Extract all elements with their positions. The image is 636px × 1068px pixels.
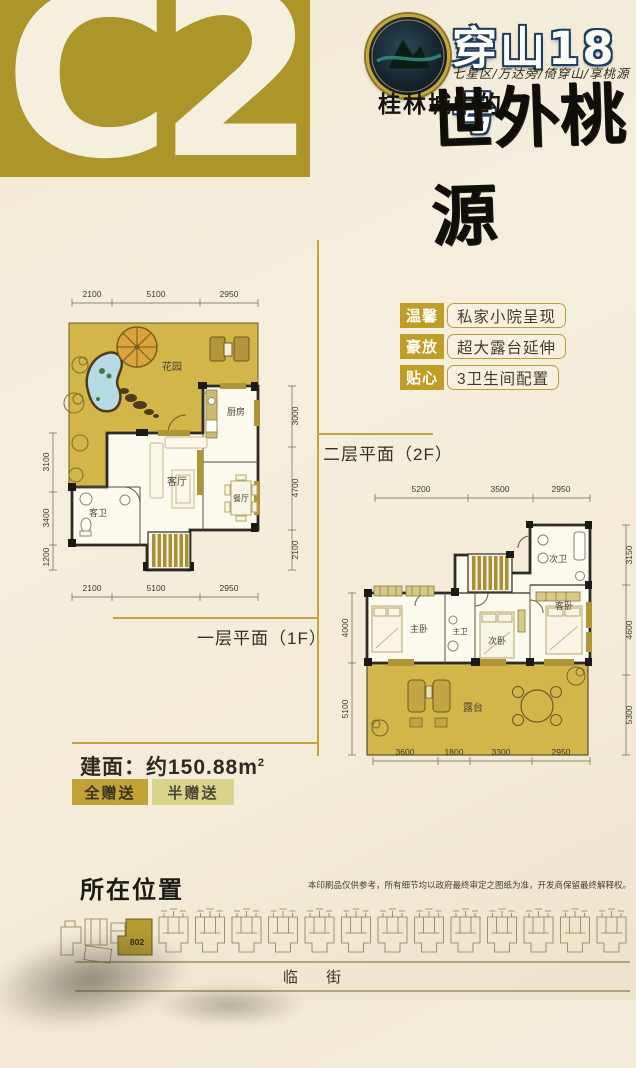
- svg-text:3300: 3300: [492, 747, 511, 757]
- room-label-living: 客厅: [167, 475, 187, 488]
- room-label-dining: 餐厅: [233, 494, 249, 503]
- site-plan-cluster: [61, 919, 125, 963]
- street-label: 临 街: [0, 966, 636, 987]
- svg-text:4000: 4000: [340, 618, 350, 637]
- svg-text:5100: 5100: [340, 699, 350, 718]
- disclaimer-text: 本印刷品仅供参考，所有细节均以政府最终审定之图纸为准，开发商保留最终解释权。: [308, 879, 631, 891]
- feature-text: 私家小院呈现: [447, 303, 566, 328]
- svg-text:2950: 2950: [552, 747, 571, 757]
- feature-row: 豪放 超大露台延伸: [400, 334, 566, 359]
- area-text: 建面：约150.88m: [80, 756, 258, 779]
- room-label-second-bed: 次卧: [488, 635, 506, 646]
- svg-text:2100: 2100: [83, 289, 102, 299]
- gift-legend: 全赠送 半赠送: [72, 779, 234, 805]
- svg-text:3000: 3000: [290, 406, 300, 425]
- stairs-2f: [468, 554, 512, 592]
- feature-row: 贴心 3卫生间配置: [400, 365, 566, 390]
- svg-text:2950: 2950: [220, 583, 239, 593]
- svg-text:5200: 5200: [412, 484, 431, 494]
- legend-half-gift: 半赠送: [152, 779, 234, 805]
- room-label-second-bath: 次卫: [549, 553, 567, 564]
- room-label-master-bath: 主卫: [453, 626, 468, 636]
- legend-full-gift: 全赠送: [72, 779, 148, 805]
- room-label-guest-bath: 客卫: [89, 507, 107, 518]
- room-label-terrace: 露台: [463, 701, 483, 714]
- highlighted-unit-code: 802: [130, 937, 144, 947]
- feature-row: 温馨 私家小院呈现: [400, 303, 566, 328]
- svg-text:2950: 2950: [552, 484, 571, 494]
- svg-text:5300: 5300: [624, 705, 634, 724]
- parasol-icon: [117, 327, 157, 367]
- unit-code: C2: [4, 0, 302, 177]
- svg-text:1200: 1200: [41, 547, 51, 566]
- svg-text:2950: 2950: [220, 289, 239, 299]
- svg-text:4600: 4600: [624, 620, 634, 639]
- area-sup: 2: [258, 757, 265, 769]
- svg-text:4700: 4700: [290, 478, 300, 497]
- svg-text:3100: 3100: [41, 452, 51, 471]
- plan2-title: 二层平面（2F）: [323, 440, 453, 465]
- svg-text:5100: 5100: [147, 289, 166, 299]
- feature-tag: 温馨: [400, 303, 444, 328]
- tagline-calligraphy: 世外桃源: [426, 61, 636, 260]
- feature-list: 温馨 私家小院呈现 豪放 超大露台延伸 贴心 3卫生间配置: [400, 303, 566, 396]
- floorplan-2f: 次卫 主卧 主卫 次卧 客卧 露台 5200 3500 2950 3600 18…: [340, 480, 636, 770]
- svg-text:3400: 3400: [41, 508, 51, 527]
- flyer-page: { "unit_badge": { "label": "C2" }, "head…: [0, 0, 636, 1000]
- stairs-1f: [148, 532, 190, 569]
- location-title: 所在位置: [80, 870, 184, 905]
- room-label-master-bed: 主卧: [410, 623, 428, 634]
- rule-area: [72, 742, 317, 744]
- room-label-guest-bed: 客卧: [555, 600, 573, 611]
- svg-text:3600: 3600: [396, 747, 415, 757]
- area-label: 建面：约150.88m2: [80, 751, 265, 781]
- svg-text:2100: 2100: [83, 583, 102, 593]
- unit-badge-block: C2: [0, 0, 310, 177]
- feature-text: 超大露台延伸: [447, 334, 566, 359]
- svg-text:3150: 3150: [624, 545, 634, 564]
- kitchen-fixtures: [206, 390, 217, 438]
- rule-2f: [317, 433, 433, 435]
- room-label-kitchen: 厨房: [227, 406, 245, 417]
- feature-tag: 豪放: [400, 334, 444, 359]
- feature-tag: 贴心: [400, 365, 444, 390]
- svg-text:5100: 5100: [147, 583, 166, 593]
- feature-text: 3卫生间配置: [447, 365, 559, 390]
- svg-text:2100: 2100: [290, 540, 300, 559]
- room-label-garden: 花园: [162, 360, 182, 373]
- site-plan-units: [159, 909, 626, 952]
- svg-text:3500: 3500: [491, 484, 510, 494]
- svg-text:1800: 1800: [445, 747, 464, 757]
- floorplan-1f: 花园 厨房 客厅 餐厅 客卫 2100 5100 2950 2100 5100 …: [40, 285, 320, 660]
